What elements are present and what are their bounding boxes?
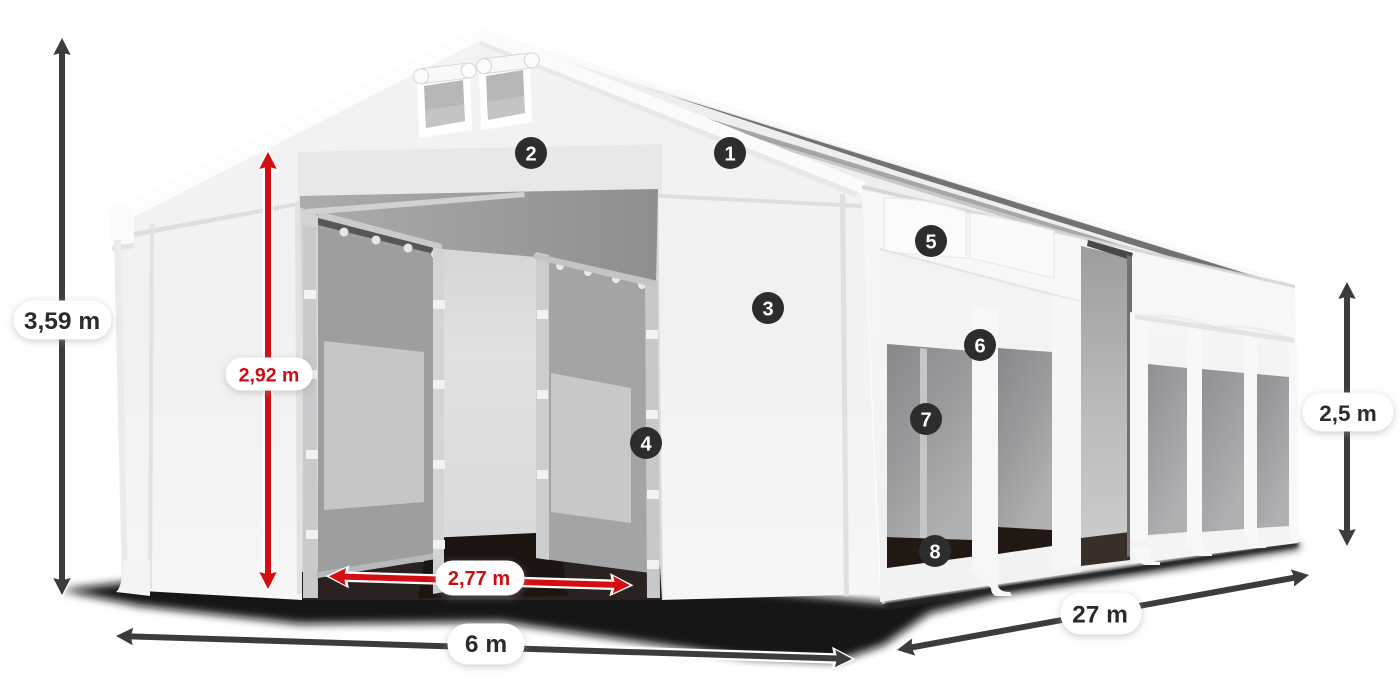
svg-text:2,77 m: 2,77 m xyxy=(448,568,510,590)
svg-text:27 m: 27 m xyxy=(1072,602,1128,629)
svg-text:2,92 m: 2,92 m xyxy=(239,365,300,387)
svg-text:5: 5 xyxy=(925,232,936,254)
svg-text:2: 2 xyxy=(525,144,536,166)
svg-text:1: 1 xyxy=(724,144,735,166)
svg-text:6: 6 xyxy=(974,336,985,358)
svg-text:8: 8 xyxy=(929,542,940,564)
svg-text:7: 7 xyxy=(920,410,931,432)
svg-text:2,5 m: 2,5 m xyxy=(1319,401,1377,426)
svg-text:4: 4 xyxy=(640,434,652,456)
svg-text:3,59 m: 3,59 m xyxy=(24,308,100,335)
svg-text:3: 3 xyxy=(762,299,773,321)
svg-text:6 m: 6 m xyxy=(465,631,507,658)
